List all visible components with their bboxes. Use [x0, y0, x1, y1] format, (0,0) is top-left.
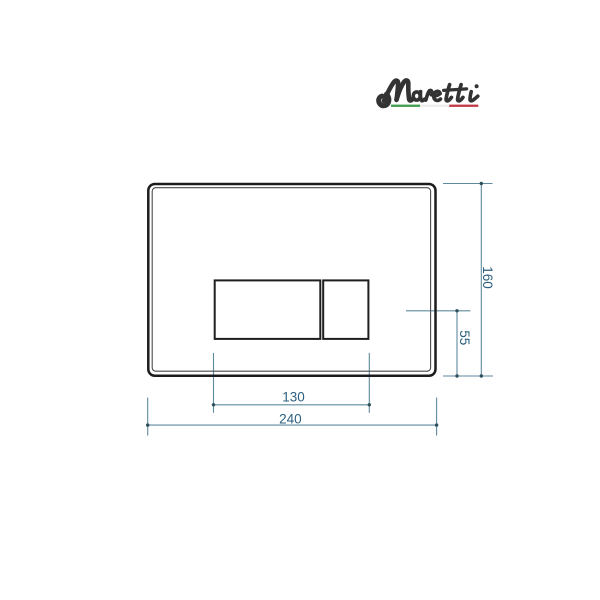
- svg-text:55: 55: [457, 330, 472, 345]
- svg-text:240: 240: [279, 412, 302, 427]
- svg-text:160: 160: [480, 266, 495, 289]
- svg-text:130: 130: [282, 389, 305, 404]
